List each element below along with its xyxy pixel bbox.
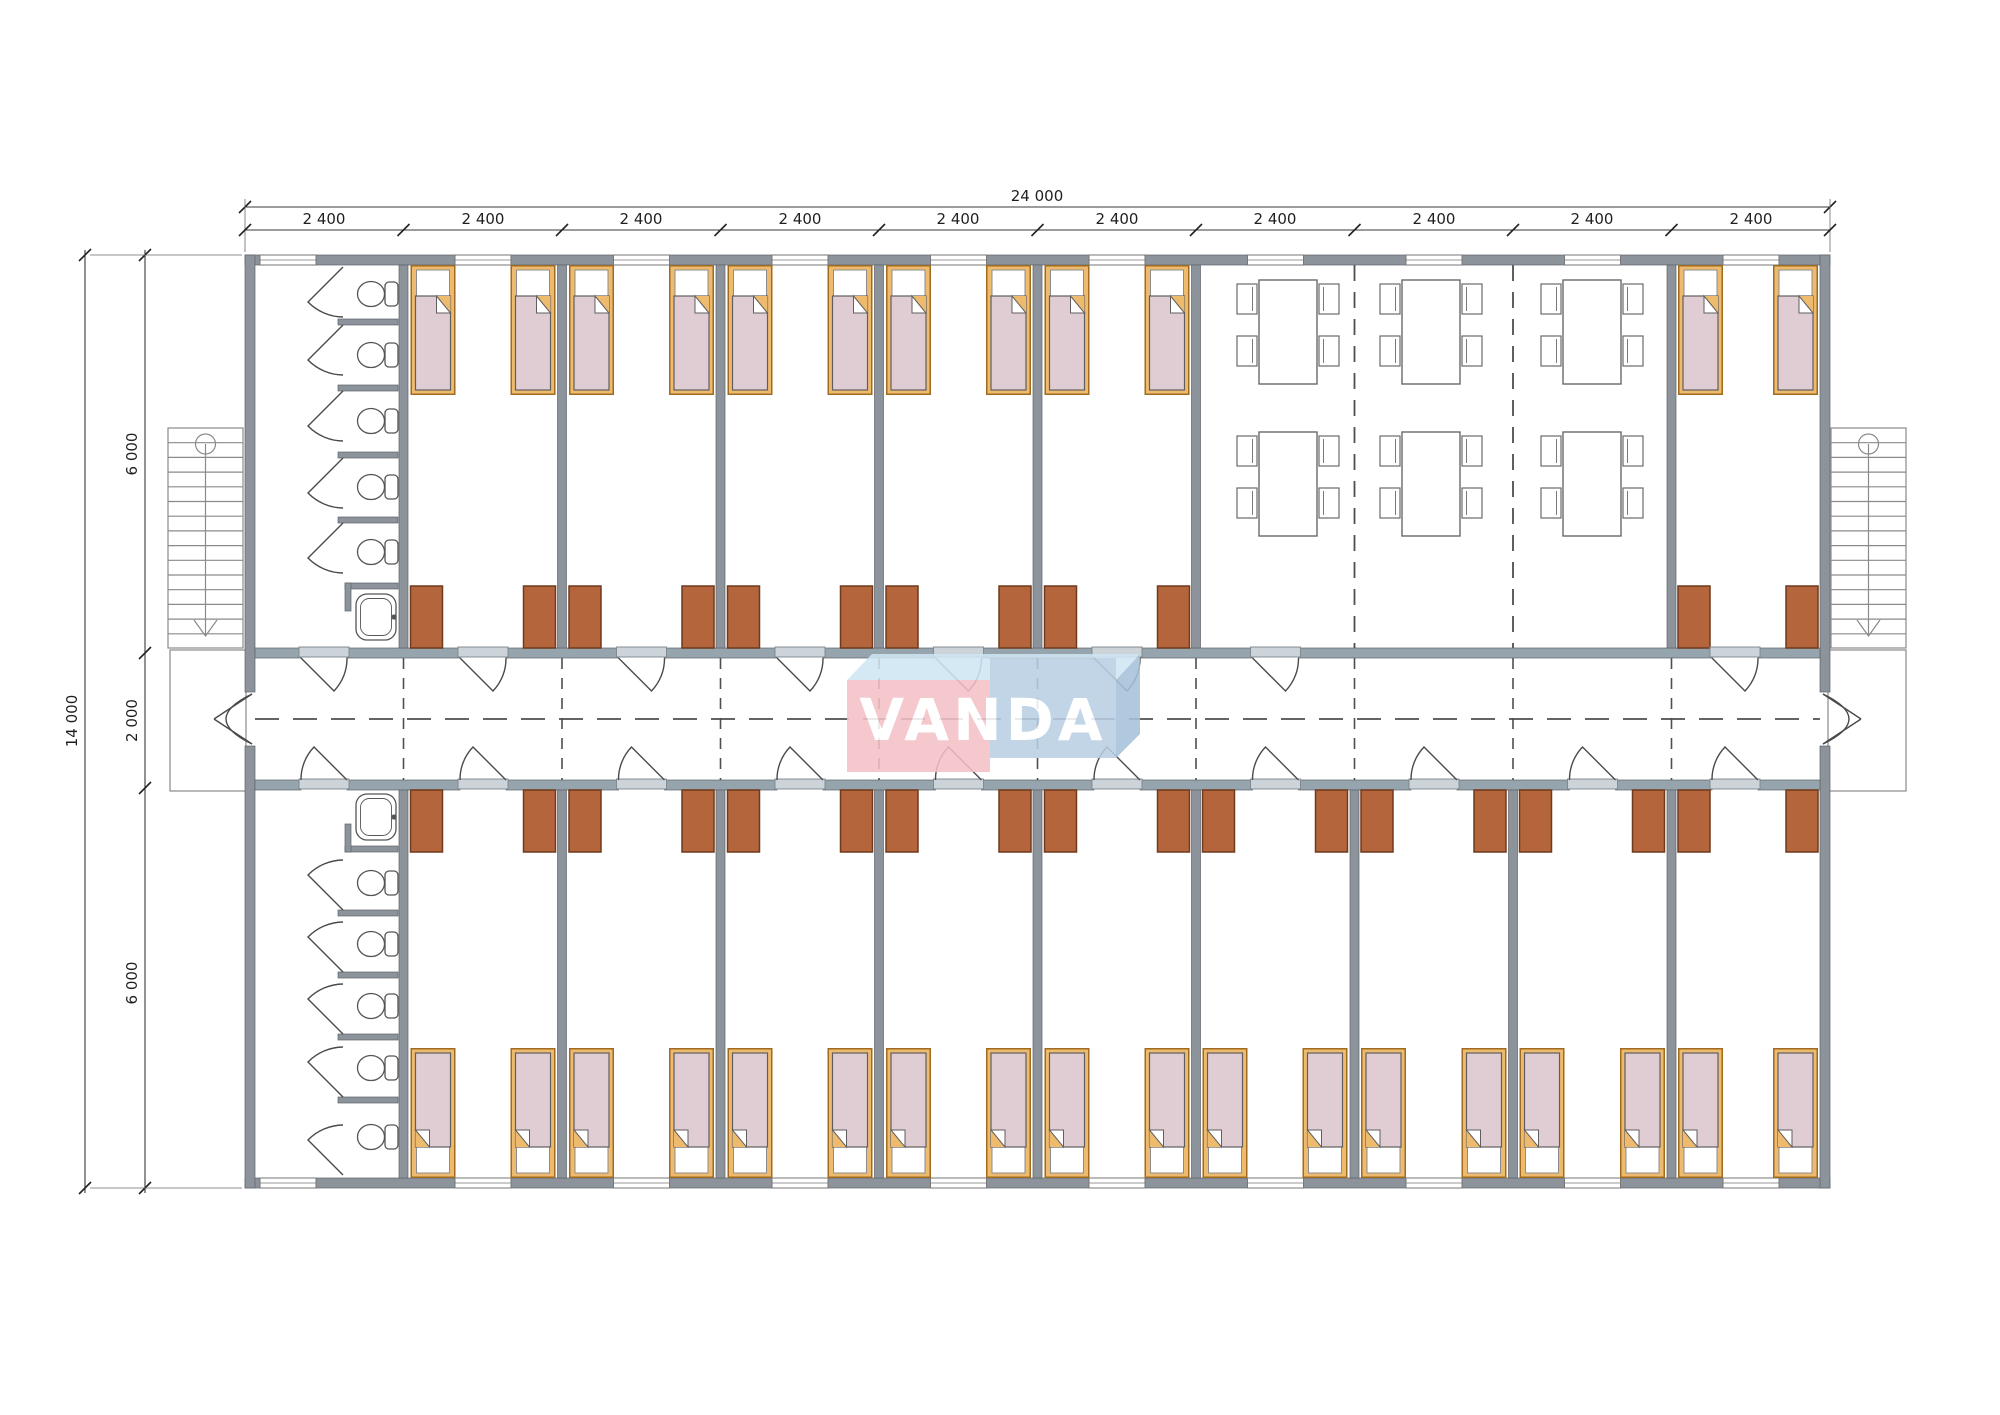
door-swing [618, 747, 664, 780]
wardrobe [728, 586, 760, 648]
door-swing [777, 658, 823, 691]
floor-plan-drawing: 24 000 2 400 2 400 2 400 2 400 2 400 2 4… [0, 0, 2000, 1415]
bed [570, 1049, 614, 1178]
sink-icon [356, 594, 397, 640]
dimension-top: 24 000 2 400 2 400 2 400 2 400 2 400 2 4… [239, 187, 1836, 252]
dining-area [1237, 265, 1643, 648]
bed [570, 266, 614, 395]
svg-text:2 400: 2 400 [1571, 210, 1614, 228]
dimension-left: 14 000 6 000 2 000 6 000 [63, 249, 242, 1194]
wardrobe [1678, 790, 1710, 852]
wardrobe [1361, 790, 1393, 852]
bed [511, 266, 555, 395]
staircase-left [168, 428, 246, 791]
staircase-right [1828, 428, 1906, 791]
dining-table [1237, 432, 1339, 536]
wardrobe [411, 586, 443, 648]
floor-plan-page: 24 000 2 400 2 400 2 400 2 400 2 400 2 4… [0, 0, 2000, 1415]
wardrobe [682, 586, 714, 648]
bed [1145, 1049, 1189, 1178]
wardrobe [569, 790, 601, 852]
entry-landing [1828, 650, 1906, 791]
svg-text:2 400: 2 400 [937, 210, 980, 228]
vanda-logo: VANDA [847, 654, 1140, 772]
wardrobe [1520, 790, 1552, 852]
wardrobe [1045, 790, 1077, 852]
bed [1774, 1049, 1818, 1178]
wardrobe [569, 586, 601, 648]
window [1723, 255, 1779, 265]
window [1248, 1178, 1304, 1188]
stall-door [308, 391, 343, 441]
door-swing [1712, 658, 1758, 691]
toilet-icon [358, 475, 399, 500]
svg-text:2 400: 2 400 [462, 210, 505, 228]
wardrobe [1316, 790, 1348, 852]
bed [411, 266, 455, 395]
window [1406, 255, 1462, 265]
wardrobe [1158, 586, 1190, 648]
bed [828, 266, 872, 395]
window [772, 1178, 828, 1188]
bed [1462, 1049, 1506, 1178]
dining-table [1541, 280, 1643, 384]
bed [1045, 1049, 1089, 1178]
window [260, 255, 316, 265]
washroom-bottom [308, 794, 398, 1175]
sink-icon [356, 794, 397, 840]
door-swing [460, 747, 506, 780]
bed [887, 1049, 931, 1178]
washroom-top [308, 267, 398, 640]
window [1406, 1178, 1462, 1188]
stairs [168, 428, 243, 648]
stall-door [308, 523, 343, 573]
toilet-icon [358, 343, 399, 368]
wardrobe [1203, 790, 1235, 852]
window [614, 1178, 670, 1188]
bed [1145, 266, 1189, 395]
beds-bottom [411, 1049, 1817, 1178]
bed [1203, 1049, 1247, 1178]
bed [828, 1049, 872, 1178]
bed [1679, 266, 1723, 395]
bed [1621, 1049, 1665, 1178]
dim-left-labels: 6 000 2 000 6 000 [123, 433, 141, 1005]
window [455, 1178, 511, 1188]
stairs [1831, 428, 1906, 648]
toilet-icon [358, 1125, 399, 1150]
wardrobe [1786, 586, 1818, 648]
stall-door [308, 984, 343, 1034]
bed [987, 1049, 1031, 1178]
window [1248, 255, 1304, 265]
window [931, 1178, 987, 1188]
bed [987, 266, 1031, 395]
window [1089, 255, 1145, 265]
door-swing [1253, 658, 1299, 691]
window [931, 255, 987, 265]
dim-total-width: 24 000 [1011, 187, 1064, 205]
toilet-icon [358, 871, 399, 896]
bed [1774, 266, 1818, 395]
svg-text:6 000: 6 000 [123, 433, 141, 476]
bed [728, 266, 772, 395]
bed [1362, 1049, 1406, 1178]
bed [670, 266, 714, 395]
window [260, 1178, 316, 1188]
door-swing [1569, 747, 1615, 780]
door-swing [1712, 747, 1758, 780]
svg-text:2 400: 2 400 [1413, 210, 1456, 228]
wardrobe [524, 790, 556, 852]
bed [887, 266, 931, 395]
svg-text:2 400: 2 400 [1254, 210, 1297, 228]
svg-text:6 000: 6 000 [123, 962, 141, 1005]
window [772, 255, 828, 265]
wardrobe [682, 790, 714, 852]
bed [1045, 266, 1089, 395]
window [1565, 1178, 1621, 1188]
door-swing [1252, 747, 1298, 780]
toilet-icon [358, 932, 399, 957]
dining-table [1380, 432, 1482, 536]
window [1723, 1178, 1779, 1188]
door-swing [777, 747, 823, 780]
wardrobes-bottom [411, 790, 1819, 852]
wardrobe [999, 790, 1031, 852]
bed [728, 1049, 772, 1178]
door-swing [619, 658, 665, 691]
svg-text:2 400: 2 400 [1096, 210, 1139, 228]
bed [1679, 1049, 1723, 1178]
svg-text:2 400: 2 400 [779, 210, 822, 228]
stall-door [308, 325, 343, 375]
bed [511, 1049, 555, 1178]
toilet-icon [358, 409, 399, 434]
wardrobe [411, 790, 443, 852]
wardrobe [524, 586, 556, 648]
wardrobe [1678, 586, 1710, 648]
toilet-icon [358, 994, 399, 1019]
toilet-icon [358, 1056, 399, 1081]
dining-table [1380, 280, 1482, 384]
wardrobe [886, 790, 918, 852]
window [1565, 255, 1621, 265]
window [614, 255, 670, 265]
stall-door [308, 922, 343, 972]
window [1089, 1178, 1145, 1188]
bed [411, 1049, 455, 1178]
wardrobe [886, 586, 918, 648]
wardrobe [999, 586, 1031, 648]
bed [1520, 1049, 1564, 1178]
bed [670, 1049, 714, 1178]
door-swing [301, 658, 347, 691]
wardrobe [1633, 790, 1665, 852]
svg-text:2 400: 2 400 [303, 210, 346, 228]
toilet-icon [358, 540, 399, 565]
wardrobe [841, 790, 873, 852]
wardrobes-top [411, 586, 1819, 648]
svg-text:2 400: 2 400 [1730, 210, 1773, 228]
dim-module-labels: 2 400 2 400 2 400 2 400 2 400 2 400 2 40… [303, 210, 1773, 228]
door-swing [301, 747, 347, 780]
stall-door [308, 267, 343, 317]
wardrobe [1786, 790, 1818, 852]
wardrobe [841, 586, 873, 648]
svg-text:2 000: 2 000 [123, 699, 141, 742]
window [455, 255, 511, 265]
bed [1303, 1049, 1347, 1178]
wardrobe [728, 790, 760, 852]
stall-door [308, 1047, 343, 1097]
svg-text:2 400: 2 400 [620, 210, 663, 228]
logo-wordmark: VANDA [859, 686, 1106, 754]
entry-landing [170, 650, 246, 791]
dim-total-height: 14 000 [63, 695, 81, 748]
stall-door [308, 860, 343, 910]
dining-table [1541, 432, 1643, 536]
toilet-icon [358, 282, 399, 307]
wardrobe [1474, 790, 1506, 852]
dining-table [1237, 280, 1339, 384]
wardrobe [1045, 586, 1077, 648]
door-swing [1411, 747, 1457, 780]
wardrobe [1158, 790, 1190, 852]
entrance-double-door-right [1823, 694, 1861, 744]
stall-door [308, 1125, 343, 1175]
door-swing [460, 658, 506, 691]
stall-door [308, 458, 343, 508]
